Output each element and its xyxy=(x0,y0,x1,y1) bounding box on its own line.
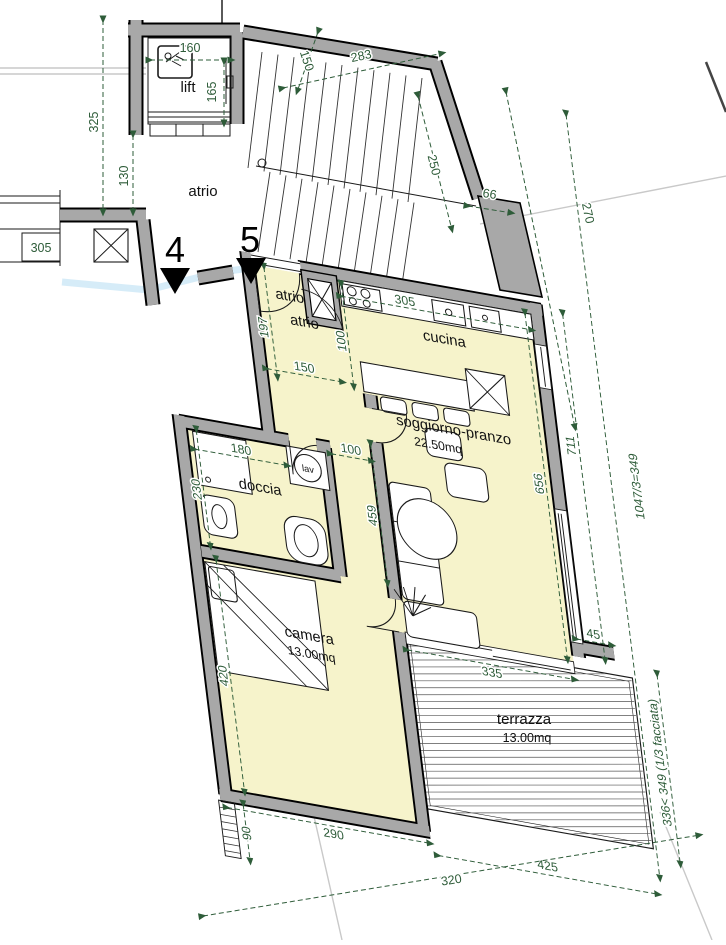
dim-160: 160 xyxy=(180,41,201,55)
dim-90: 90 xyxy=(239,825,254,841)
left-unit-fragment: 305 xyxy=(0,190,128,266)
dim-425: 425 xyxy=(536,857,558,875)
dim-711: 711 xyxy=(563,435,579,457)
dim-305-left-label: 305 xyxy=(31,241,52,255)
room-label-lift: lift xyxy=(181,79,197,96)
dim-1047: 1047/3=349 xyxy=(626,452,648,520)
dim-150-top: 150 xyxy=(297,49,317,73)
floor-plan-page: 305 xyxy=(0,0,726,940)
pillow-icon xyxy=(208,566,238,602)
dim-197: 197 xyxy=(255,316,271,339)
room-label-terrazza: terrazza xyxy=(497,711,552,728)
dim-320: 320 xyxy=(440,871,463,888)
room-label-atrio-stair: atrio xyxy=(188,183,217,200)
dim-230: 230 xyxy=(189,478,205,501)
dim-66: 66 xyxy=(482,186,498,202)
room-area-terrazza: 13.00mq xyxy=(503,731,552,745)
unit-number-5: 5 xyxy=(240,219,260,260)
dim-270: 270 xyxy=(579,202,597,225)
dim-459: 459 xyxy=(364,504,380,527)
floor-plan-drawing: 305 xyxy=(0,0,726,940)
ne-corner-wall xyxy=(478,196,542,297)
dim-336-facciata: 336< 349 (1/3 facciata) xyxy=(645,698,674,828)
dim-420: 420 xyxy=(215,664,231,687)
dim-290: 290 xyxy=(322,825,344,843)
apartment: lav 197 150 100 xyxy=(125,37,700,940)
dim-100-shaft: 100 xyxy=(333,329,349,352)
dim-165: 165 xyxy=(205,82,219,103)
dim-325: 325 xyxy=(87,112,101,133)
dim-130: 130 xyxy=(117,166,131,187)
dim-45: 45 xyxy=(586,626,601,642)
dim-656: 656 xyxy=(531,472,547,495)
unit-number-4: 4 xyxy=(165,229,185,270)
dim-250: 250 xyxy=(425,153,444,177)
dim-283: 283 xyxy=(350,47,373,65)
